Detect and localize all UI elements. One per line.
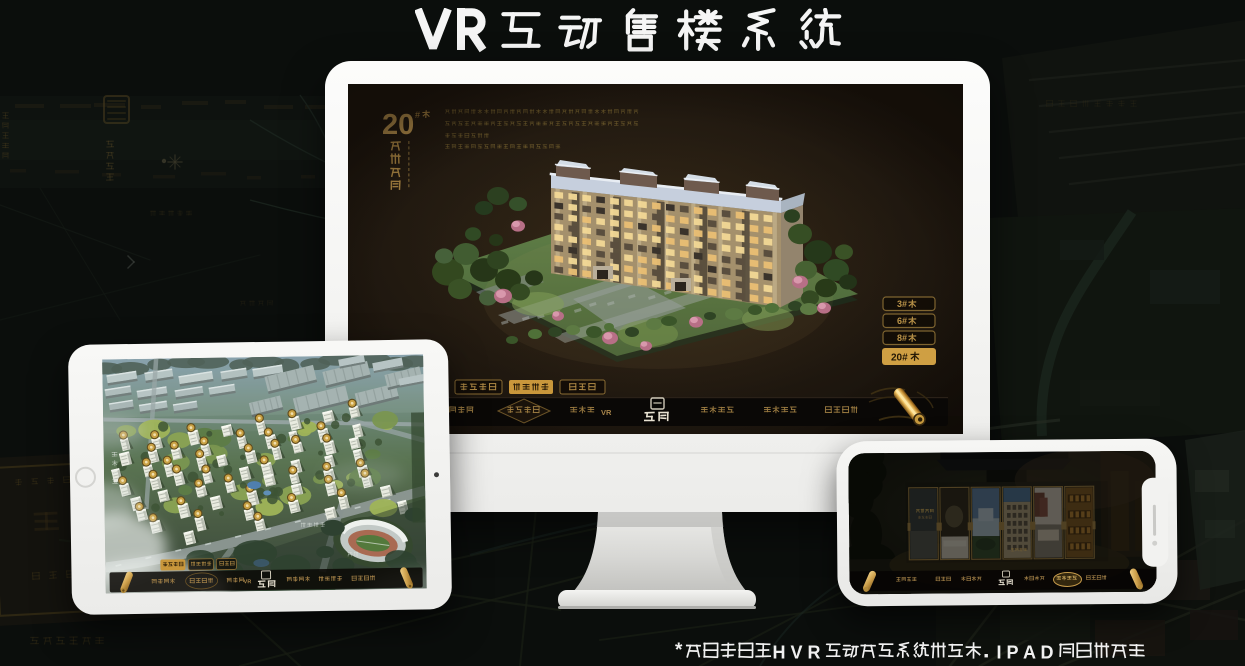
svg-text:6#: 6# (897, 316, 907, 326)
svg-text:A: A (1023, 643, 1036, 663)
svg-text:P: P (1007, 643, 1019, 663)
svg-text:H: H (773, 643, 786, 663)
svg-text:8#: 8# (897, 333, 907, 343)
svg-text:20#: 20# (891, 353, 908, 364)
svg-text:VR: VR (244, 579, 252, 585)
svg-text:D: D (1041, 643, 1054, 663)
svg-text:I: I (997, 643, 1002, 663)
svg-text:3#: 3# (897, 299, 907, 309)
svg-text:V: V (791, 643, 803, 663)
svg-text:VR: VR (601, 408, 612, 417)
svg-text:R: R (808, 643, 821, 663)
svg-text:*: * (675, 640, 683, 661)
